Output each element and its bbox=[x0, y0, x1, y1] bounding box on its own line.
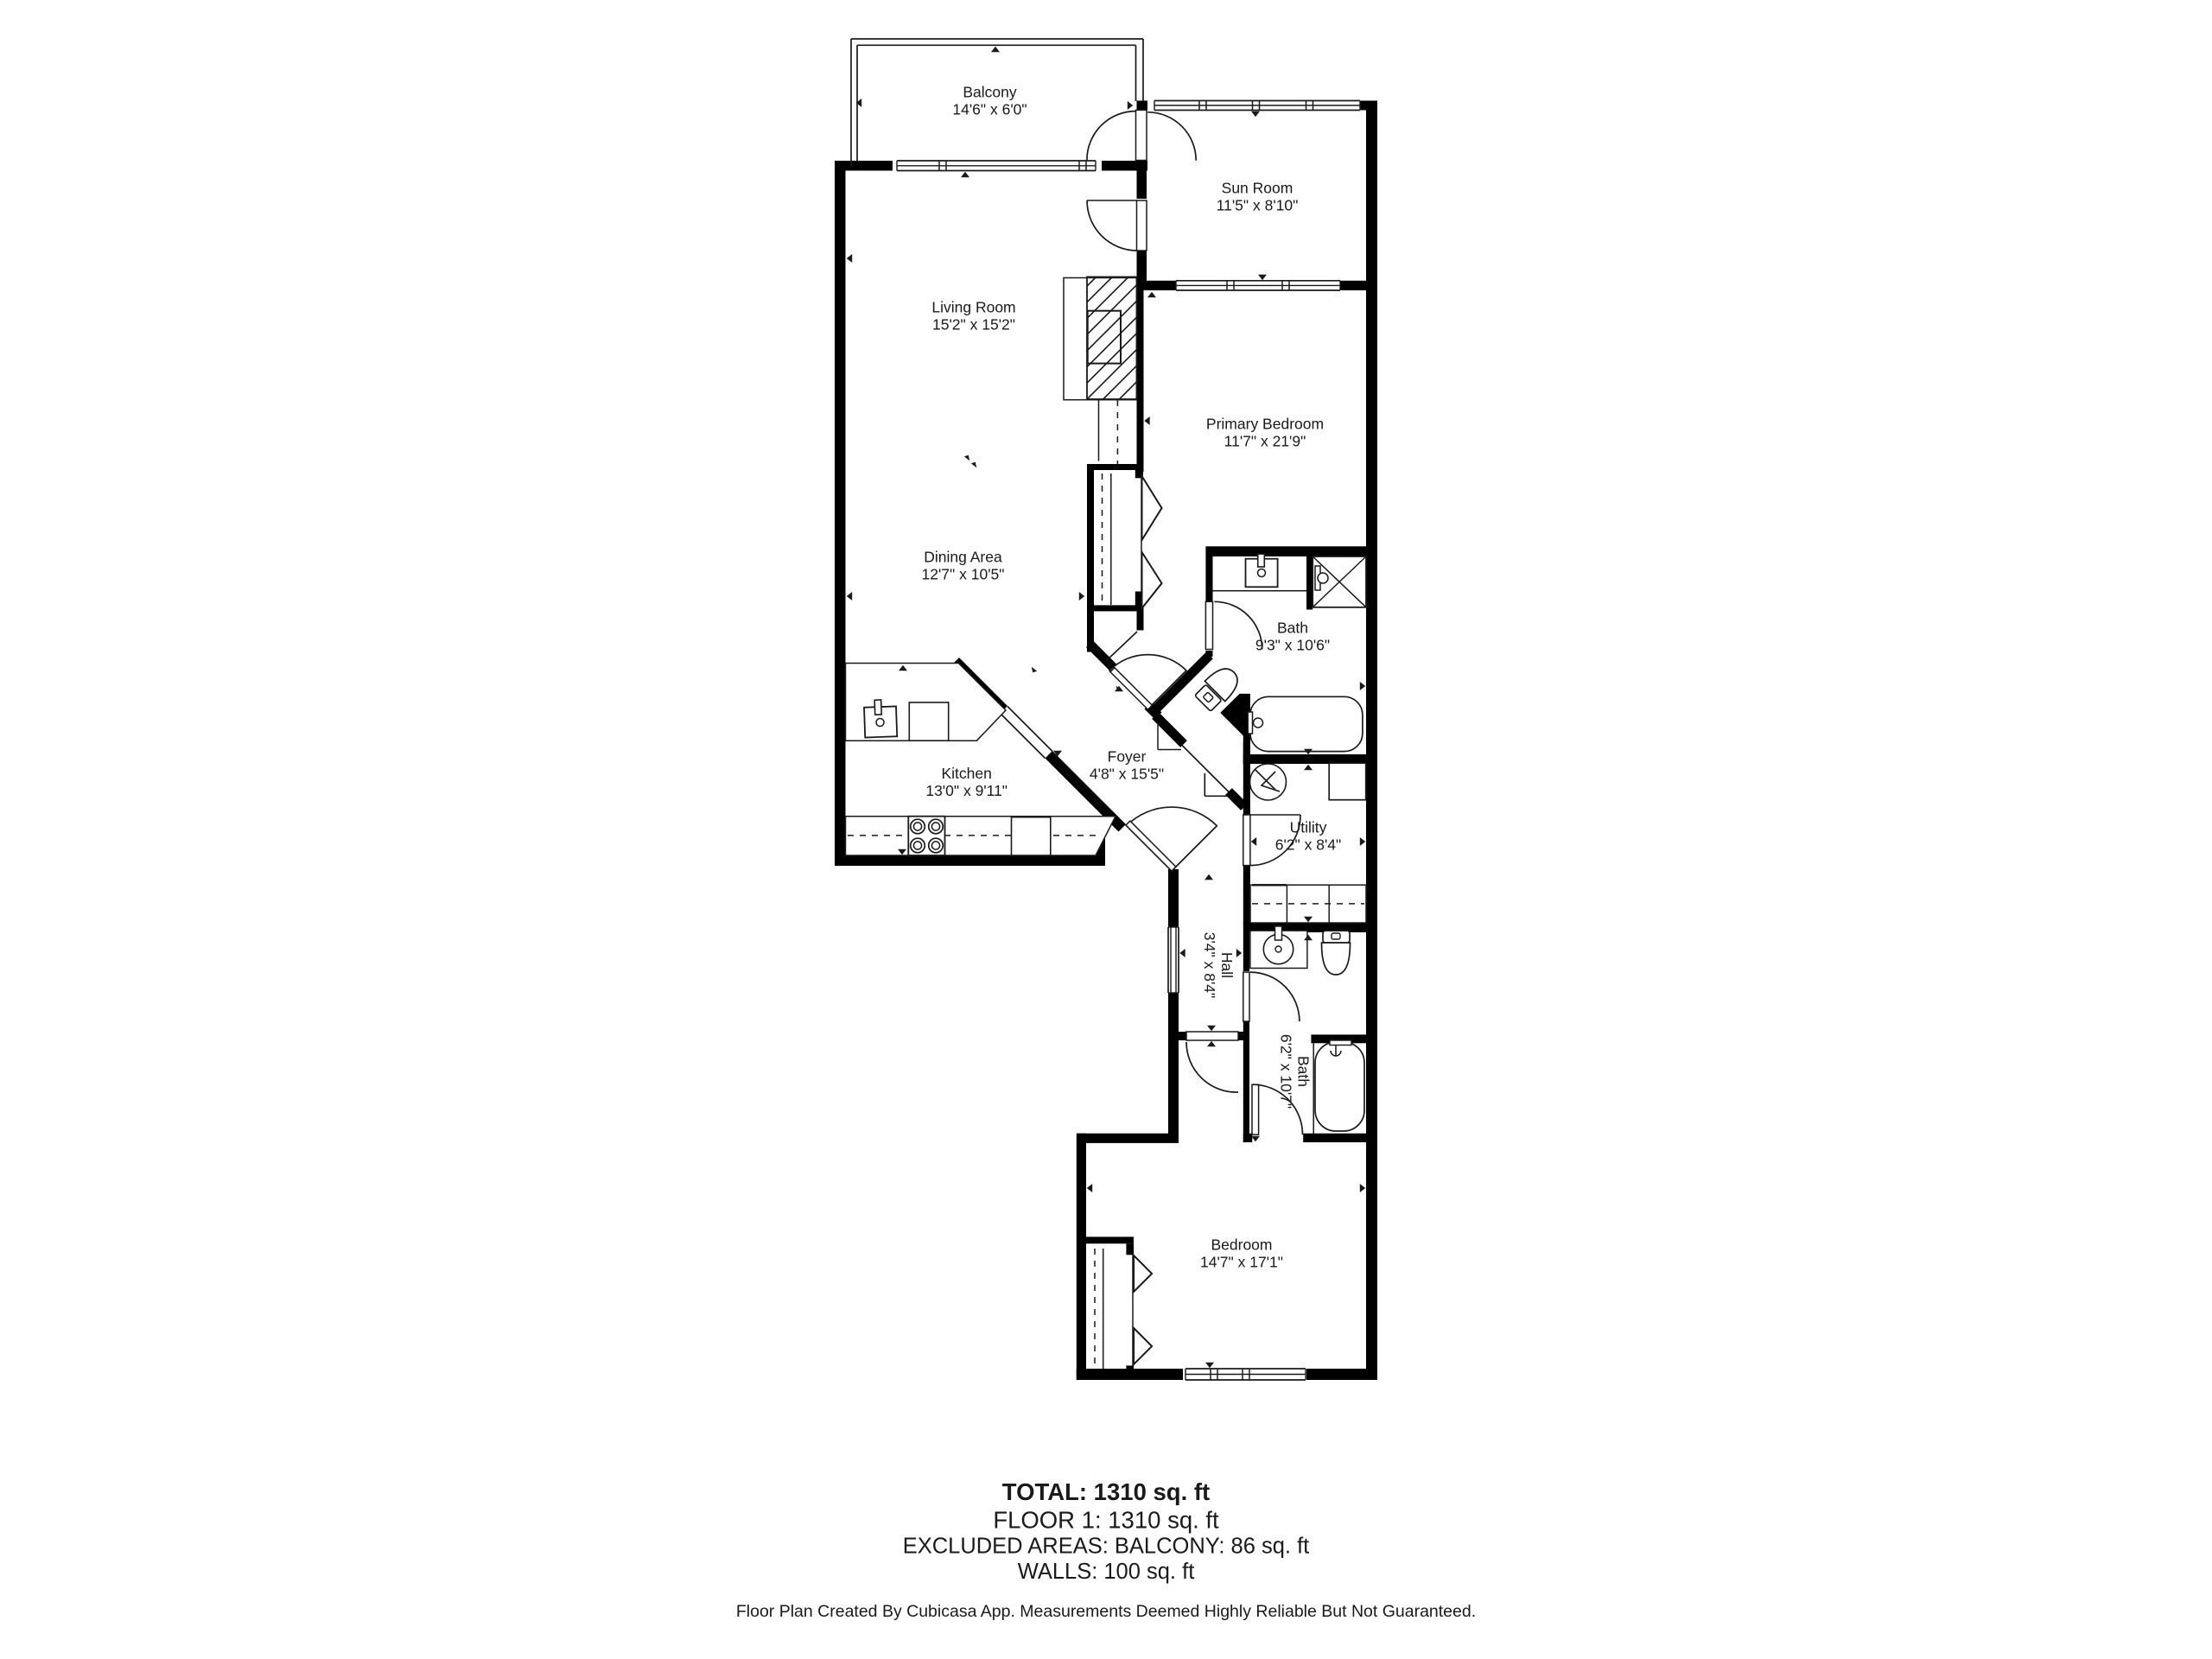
svg-text:6'2" x 8'4": 6'2" x 8'4" bbox=[1275, 836, 1342, 854]
svg-text:Bath: Bath bbox=[1295, 1056, 1313, 1087]
svg-text:Bath: Bath bbox=[1277, 620, 1308, 637]
svg-text:11'5" x 8'10": 11'5" x 8'10" bbox=[1217, 197, 1299, 214]
svg-text:Utility: Utility bbox=[1290, 819, 1327, 836]
svg-text:Hall: Hall bbox=[1218, 952, 1236, 978]
svg-text:Foyer: Foyer bbox=[1108, 748, 1147, 766]
svg-text:12'7" x 10'5": 12'7" x 10'5" bbox=[922, 566, 1005, 583]
svg-text:Primary Bedroom: Primary Bedroom bbox=[1206, 416, 1324, 433]
svg-text:9'3" x 10'6": 9'3" x 10'6" bbox=[1255, 637, 1330, 654]
svg-text:4'8" x 15'5": 4'8" x 15'5" bbox=[1090, 766, 1164, 783]
svg-text:11'7" x 21'9": 11'7" x 21'9" bbox=[1224, 433, 1306, 450]
svg-text:3'4" x 8'4": 3'4" x 8'4" bbox=[1201, 932, 1218, 999]
svg-text:Kitchen: Kitchen bbox=[942, 765, 992, 782]
svg-text:FLOOR 1: 1310 sq. ft: FLOOR 1: 1310 sq. ft bbox=[993, 1507, 1219, 1534]
svg-text:Floor Plan Created By Cubicasa: Floor Plan Created By Cubicasa App. Meas… bbox=[736, 1602, 1476, 1621]
svg-text:14'6" x 6'0": 14'6" x 6'0" bbox=[952, 101, 1027, 118]
svg-text:TOTAL: 1310 sq. ft: TOTAL: 1310 sq. ft bbox=[1002, 1478, 1210, 1505]
svg-text:Sun Room: Sun Room bbox=[1222, 180, 1294, 197]
svg-text:15'2" x 15'2": 15'2" x 15'2" bbox=[932, 316, 1015, 334]
svg-text:Dining Area: Dining Area bbox=[924, 549, 1002, 566]
svg-text:13'0" x 9'11": 13'0" x 9'11" bbox=[925, 782, 1007, 799]
svg-text:WALLS: 100 sq. ft: WALLS: 100 sq. ft bbox=[1018, 1560, 1195, 1584]
svg-text:Living Room: Living Room bbox=[931, 299, 1015, 316]
svg-text:14'7" x 17'1": 14'7" x 17'1" bbox=[1200, 1254, 1283, 1271]
svg-text:Balcony: Balcony bbox=[963, 84, 1017, 101]
svg-text:Bedroom: Bedroom bbox=[1211, 1236, 1272, 1254]
svg-text:EXCLUDED AREAS: BALCONY: 86 sq: EXCLUDED AREAS: BALCONY: 86 sq. ft bbox=[903, 1535, 1310, 1559]
svg-text:6'2" x 10'7": 6'2" x 10'7" bbox=[1278, 1034, 1295, 1109]
